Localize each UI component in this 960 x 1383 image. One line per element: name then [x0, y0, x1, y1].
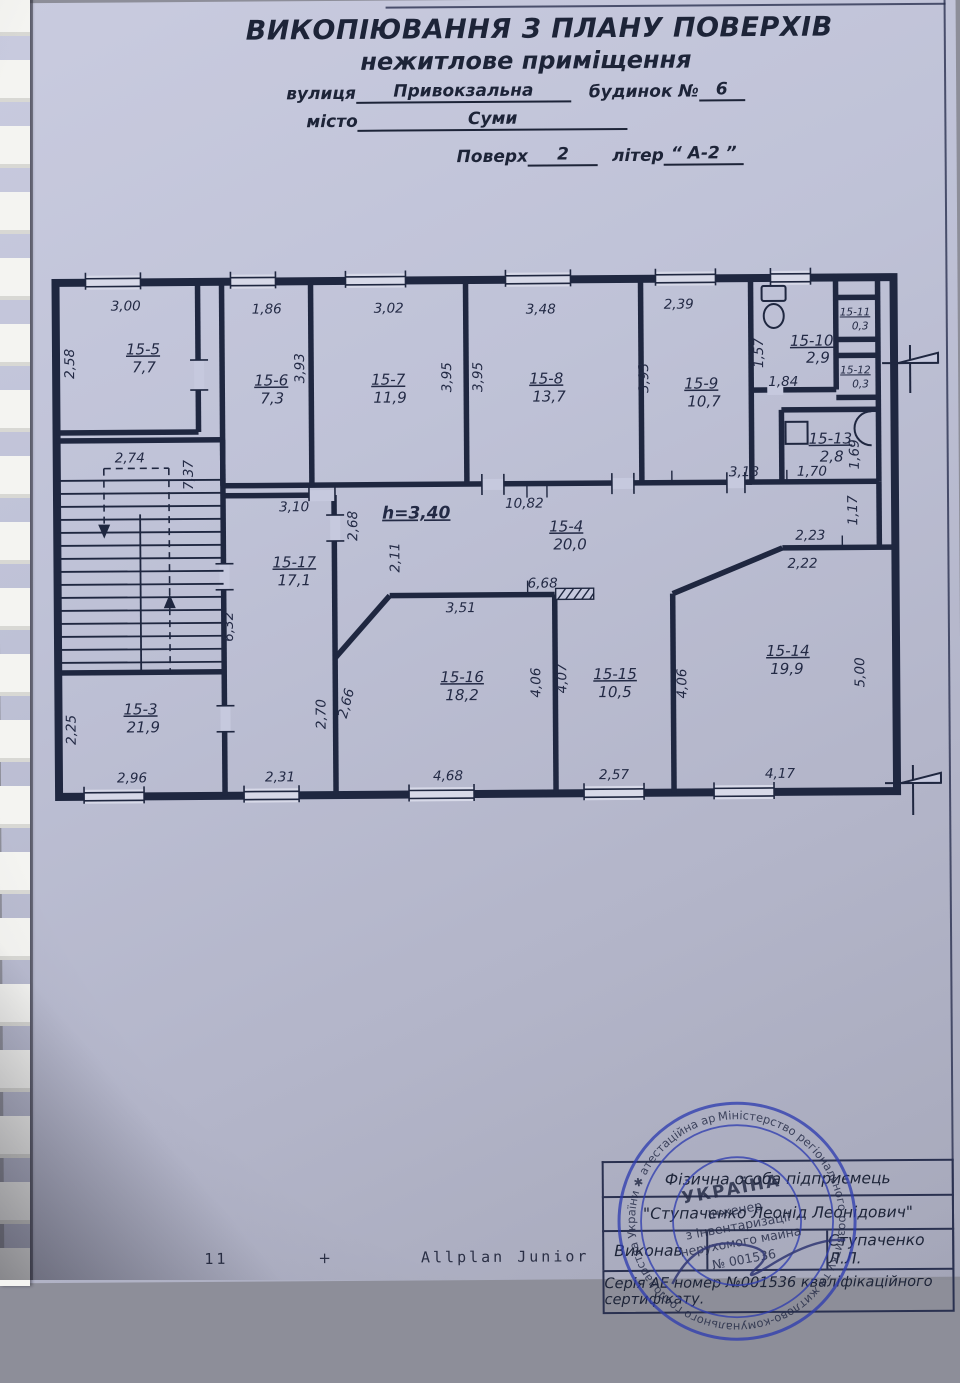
hatched-opening	[556, 588, 594, 599]
dim: 2,25	[64, 715, 80, 745]
room-label: 15-15	[593, 665, 637, 683]
room-label: 15-8	[529, 369, 563, 387]
liter-label: літер	[612, 146, 664, 166]
plus-mark: +	[318, 1249, 331, 1267]
dim: 2,11	[387, 542, 403, 572]
floor-value: 2	[528, 144, 598, 166]
room-area: 21,9	[127, 718, 161, 736]
windows	[80, 268, 814, 804]
room-label: 15-9	[684, 374, 718, 392]
room-area: 17,1	[278, 571, 312, 589]
room-label: 15-5	[126, 340, 160, 358]
dim: 4,06	[674, 668, 690, 698]
dim: 4,06	[528, 667, 544, 697]
house-value: 6	[699, 79, 745, 101]
dim: 3,51	[446, 600, 476, 616]
dim: 3,48	[526, 301, 556, 317]
dim: 3,95	[470, 362, 486, 392]
room-area: 7,7	[132, 358, 156, 376]
outer-walls	[55, 277, 897, 797]
dim: 1,57	[751, 338, 767, 369]
stair-arrow-down	[98, 525, 110, 539]
room-area: 11,9	[373, 389, 407, 407]
room-area: 13,7	[532, 387, 566, 405]
room-area: 10,5	[598, 683, 632, 701]
software-name: Allplan Junior	[421, 1247, 590, 1266]
dim: 3,00	[111, 298, 141, 314]
liter-value: “ А-2 ”	[664, 143, 744, 166]
house-label: будинок №	[589, 81, 699, 102]
paper-sheet: ВИКОПІЮВАННЯ З ПЛАНУ ПОВЕРХІВ нежитлове …	[0, 0, 960, 1283]
dim: 2,96	[117, 770, 147, 786]
city-value: Суми	[358, 108, 628, 132]
dim: 1,86	[252, 301, 282, 317]
page-number: 11	[204, 1250, 228, 1268]
frame-line-top	[386, 3, 946, 9]
dim: 6,68	[528, 575, 558, 591]
dim: 1,17	[845, 495, 861, 526]
dim: 4,07	[554, 663, 570, 694]
room-labels: 15-5 7,7 15-6 7,3 15-7 11,9 15-8 13,7 15…	[121, 306, 874, 736]
room-area: 18,2	[445, 686, 479, 704]
dim: 6,32	[221, 612, 237, 642]
floor-label: Поверх	[457, 147, 528, 167]
street-label: вулиця	[286, 84, 356, 104]
dim: 2,68	[345, 511, 361, 541]
room-label: 15-12	[840, 364, 871, 376]
room-area: 19,9	[770, 660, 804, 678]
room-label: 15-11	[840, 306, 871, 318]
room-area: 7,3	[260, 389, 284, 407]
dim: 4,68	[433, 768, 463, 784]
staircase	[57, 468, 224, 673]
dim: 2,39	[664, 296, 694, 312]
inner-walls	[55, 277, 897, 797]
dim: 2,31	[265, 769, 295, 785]
dim: 3,93	[636, 363, 652, 393]
dim: 7,37	[181, 460, 197, 491]
document-title: ВИКОПІЮВАННЯ З ПЛАНУ ПОВЕРХІВ	[246, 12, 806, 47]
floor-plan: 15-5 7,7 15-6 7,3 15-7 11,9 15-8 13,7 15…	[25, 259, 949, 854]
dim: 2,70	[313, 699, 329, 729]
room-label: 15-16	[440, 668, 484, 686]
dim: 3,18	[729, 464, 759, 480]
dim: 3,95	[439, 362, 455, 392]
dim: 2,58	[62, 349, 78, 379]
room-label: 15-6	[254, 371, 288, 389]
toilet-icon	[762, 286, 786, 328]
dim: 1,84	[768, 374, 798, 390]
city-label: місто	[306, 112, 357, 132]
floor-plan-drawing: 15-5 7,7 15-6 7,3 15-7 11,9 15-8 13,7 15…	[25, 259, 949, 850]
document-subtitle: нежитлове приміщення	[246, 45, 806, 77]
spiral-binding	[0, 0, 30, 1286]
dim: 2,22	[787, 556, 817, 572]
dim: 3,02	[374, 301, 404, 317]
dim: 1,70	[797, 464, 827, 480]
room-area: 10,7	[687, 392, 721, 410]
round-stamp: Міністерство регіонального розвитку та ж…	[580, 1064, 894, 1378]
room-area: 0,3	[852, 320, 869, 332]
room-area: 20,0	[553, 535, 587, 553]
room-label: 15-17	[272, 553, 316, 571]
room-label: 15-3	[123, 700, 157, 718]
dim: 3,93	[292, 353, 308, 383]
footer-note: 11 + Allplan Junior	[204, 1247, 624, 1268]
dim: 1,69	[847, 439, 863, 469]
room-area: 2,9	[806, 349, 830, 367]
room-label: 15-14	[766, 642, 810, 660]
binding-edge-shadow	[30, 0, 33, 1280]
dim: 2,74	[115, 450, 145, 466]
dim: 10,82	[505, 496, 544, 512]
title-block: ВИКОПІЮВАННЯ З ПЛАНУ ПОВЕРХІВ нежитлове …	[246, 12, 807, 169]
dim: 5,00	[852, 657, 868, 687]
street-value: Привокзальна	[356, 80, 571, 104]
room-label: 15-4	[549, 517, 583, 535]
ceiling-height-note: h=3,40	[382, 503, 451, 523]
dim: 4,17	[765, 766, 796, 782]
dim: 3,10	[279, 499, 309, 515]
dim: 2,66	[335, 687, 358, 720]
room-area: 0,3	[852, 378, 869, 390]
dim: 2,23	[795, 528, 825, 544]
photographed-floor-plan-page: { "title": { "line1": "ВИКОПІЮВАННЯ З ПЛ…	[0, 0, 960, 1280]
room-label: 15-10	[790, 332, 834, 350]
room-label: 15-7	[371, 371, 406, 389]
dim: 2,57	[599, 767, 630, 783]
door-openings	[190, 356, 786, 732]
